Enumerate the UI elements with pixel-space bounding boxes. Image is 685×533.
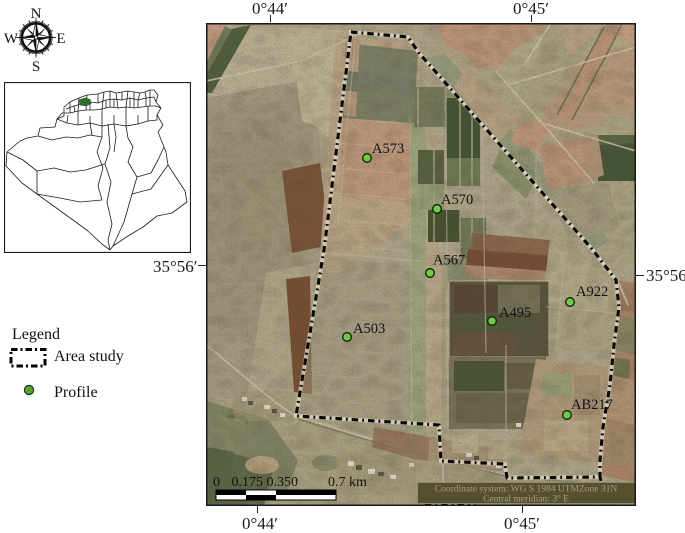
svg-text:Coordinate system: WG S 1984 U: Coordinate system: WG S 1984 UTMZone 31N xyxy=(435,485,618,495)
svg-text:N: N xyxy=(31,6,42,22)
svg-text:A570: A570 xyxy=(441,192,473,208)
svg-text:A922: A922 xyxy=(576,284,608,300)
svg-text:A503: A503 xyxy=(353,321,385,337)
svg-text:A567: A567 xyxy=(433,253,465,269)
svg-text:S: S xyxy=(32,59,40,72)
svg-text:A573: A573 xyxy=(372,141,404,157)
svg-text:0.7 km: 0.7 km xyxy=(328,475,367,490)
svg-text:0: 0 xyxy=(213,475,220,490)
svg-text:AB217: AB217 xyxy=(571,397,613,413)
svg-text:E: E xyxy=(56,31,65,47)
svg-text:Central meridian: 3° E: Central meridian: 3° E xyxy=(483,494,569,505)
svg-text:W: W xyxy=(4,31,19,47)
svg-text:0.175: 0.175 xyxy=(232,475,264,490)
svg-text:A495: A495 xyxy=(499,305,531,321)
svg-text:0.350: 0.350 xyxy=(267,475,299,490)
